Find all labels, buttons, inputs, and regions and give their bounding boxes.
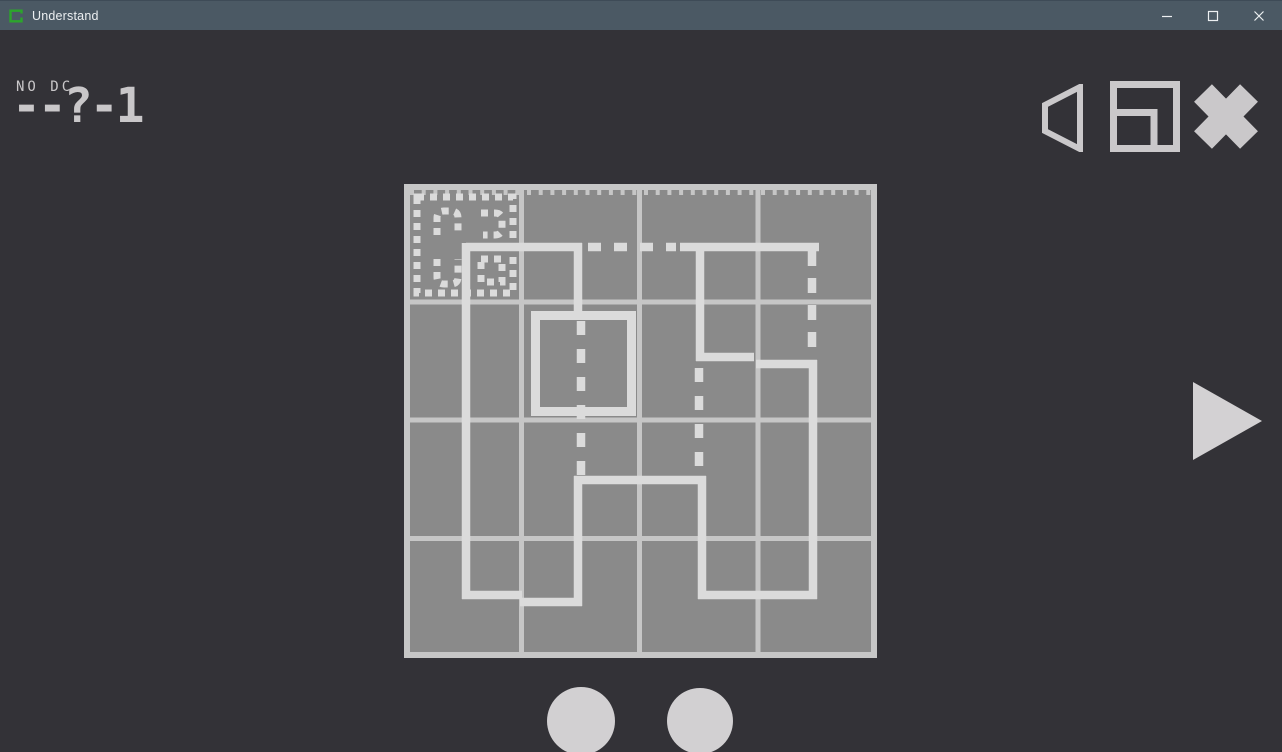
volume-icon — [1042, 84, 1084, 152]
window-controls — [1144, 1, 1282, 31]
play-button[interactable] — [1191, 381, 1263, 461]
dot-button-left[interactable] — [547, 687, 615, 752]
window-mode-button[interactable] — [1110, 81, 1180, 152]
dot-button-right[interactable] — [667, 688, 733, 752]
app-logo-icon — [8, 8, 24, 24]
puzzle-board[interactable] — [404, 184, 877, 658]
level-code: --?-1 — [12, 80, 142, 133]
maximize-button[interactable] — [1190, 1, 1236, 31]
minimize-icon — [1161, 10, 1173, 22]
app-window: Understand NO DC --?-1 — [0, 0, 1282, 752]
minimize-button[interactable] — [1144, 1, 1190, 31]
close-icon — [1253, 10, 1265, 22]
play-icon — [1191, 381, 1263, 461]
volume-button[interactable] — [1042, 84, 1084, 152]
maximize-icon — [1207, 10, 1219, 22]
close-button[interactable] — [1236, 1, 1282, 31]
exit-icon — [1190, 82, 1262, 152]
window-title: Understand — [32, 9, 99, 23]
game-stage: NO DC --?-1 — [0, 30, 1282, 752]
window-mode-icon — [1110, 81, 1180, 152]
titlebar[interactable]: Understand — [0, 0, 1282, 30]
exit-button[interactable] — [1190, 82, 1262, 152]
